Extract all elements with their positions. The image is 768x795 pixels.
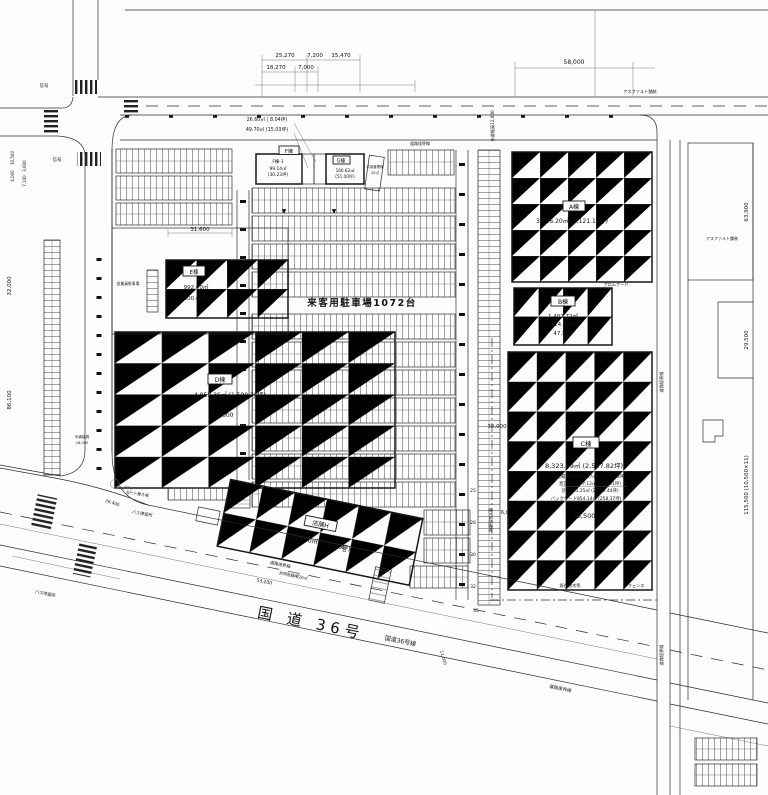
dim-label: 7,100 [22,175,27,187]
building-b: B棟 1,402.72㎡ (424.32坪) 47,550 [514,288,612,345]
building-f-label: F棟 [285,148,293,155]
crosswalk-east [124,99,138,114]
signal-label: 信号 [40,82,49,89]
promenade-label: プロムナード [603,282,628,288]
building-f1-area: 99.14㎡ [270,165,288,172]
building-d-dim: 57,600 [213,412,234,419]
dim-label: 53,200 [256,578,273,587]
building-b-area-tsubo: (424.32坪) [548,320,577,328]
dim-label: 32,000 [7,276,13,296]
building-a: A棟 3,706.20㎡ (1,121.12坪) プロムナード [512,152,652,288]
building-c-sub2: 直営売場477.12㎡ (192.91坪) [559,480,621,487]
dim-label: 30,000 [487,424,507,430]
stall-count: 25 [470,488,476,494]
building-c-label: C棟 [580,439,592,448]
building-c-sub1: (売場) 内6,995.17㎡ (2,116.93坪) [555,473,626,480]
bus-stop-label: バス停留所 [131,508,153,519]
building-e: E棟 992.00㎡ (300.08坪) 従業員駐車場 31,600 [112,227,288,334]
site-plan-svg: 信号 信号 道路境界線 歩道幅員12,000 25,270 7,200 15,4… [0,0,768,795]
site-plan-drawing: 信号 信号 道路境界線 歩道幅員12,000 25,270 7,200 15,4… [0,0,768,795]
dim-label: 10,500 [10,151,15,165]
dim-label: 18,270 [266,65,286,71]
building-e-area-tsubo: (300.08坪) [181,294,210,302]
building-f1-area-tsubo: (30.23坪) [268,171,289,178]
stall-count: 28 [470,520,476,526]
building-a-label: A棟 [569,203,579,211]
sidewalk-width-label: 歩道幅員12,000 [489,110,496,142]
building-d-label: D棟 [215,376,226,384]
building-f-note2: 49.70㎡ (15.03坪) [246,126,288,133]
building-f1-label: F棟-1 [272,158,284,165]
dim-label: 25,270 [275,53,295,59]
arrow-down-icon: ▼ [332,208,337,215]
building-f-note1: 26.60㎡ ( 8.04坪) [247,116,288,123]
bus-stop-label: バス停留所 [34,588,56,599]
building-c-area: 8,323.39㎡ (2,517.82坪) [545,461,623,470]
building-b-area: 1,402.72㎡ [548,312,578,320]
crosswalk-north [75,80,97,94]
building-b-label: B棟 [558,298,568,306]
dim-label: 11,000 [439,650,448,666]
building-g-label: G棟 [337,158,346,165]
dim-label: 86,100 [7,390,13,410]
dim-label: 4,000 [10,170,15,182]
stall-count: 35 [473,608,479,614]
building-e-area: 992.00㎡ [184,283,209,291]
building-a-area: 3,706.20㎡ (1,121.12坪) [536,217,608,225]
dim-label: 31,600 [190,227,210,233]
arrow-down-icon: ▼ [282,208,287,215]
bicycle-parking-label: 共同駐輪場20㎡ [279,569,309,581]
road-boundary-label: 道路境界線 [658,371,665,393]
building-d-area: 4,959.36㎡ (1,500.20坪) [194,391,266,399]
dim-label: 115,500 (10,500×11) [744,455,750,515]
stall-count: 32 [470,584,476,590]
crosswalk-route36 [73,542,97,577]
building-e-label: E棟 [190,268,199,276]
employee-parking-label: 従業員駐車場 [117,281,140,286]
signal-label: 信号 [53,156,62,163]
crosswalk-route36 [31,494,58,531]
dim-label: 29,500 [744,330,750,350]
crosswalk-south [77,152,101,166]
sidewalk-label: 歩道幅員 [75,434,90,439]
existing-trees-label: 既存樹木等 [560,582,581,589]
building-c: C棟 8,323.39㎡ (2,517.82坪) (売場) 内6,995.17㎡… [508,352,652,590]
service-route-label: 搬入車両動線 [488,508,494,532]
asphalt-label: アスファルト舗装 [706,235,738,241]
management-hut-label: 共用管理棟 [367,164,385,169]
east-side-area: アスファルト舗装 63,900 29,500 115,500 (10,500×1… [657,132,757,795]
dim-label: 3,600 [22,160,27,172]
building-c-sub3: 計7,465.25㎡ (2,256.44坪) [561,487,618,494]
dim-label: 58,000 [564,59,585,66]
route36-label: 国 道 36号 [256,603,366,642]
management-hut-area: 20㎡ [371,170,379,175]
dim-label: 18,000 [76,441,89,445]
road-boundary-label: 道路境界線 [549,683,573,694]
crosswalk-west [44,110,58,135]
building-b-dim: 47,550 [553,331,573,337]
dim-label: 7,200 [307,53,323,59]
building-d: D棟 4,959.36㎡ (1,500.20坪) 57,600 [115,332,395,508]
building-g-area-tsubo: (51.00坪) [335,173,355,180]
building-c-dim: 70,500 [573,512,596,520]
stall-count: 30 [470,552,476,558]
building-g-area: 166.62㎡ [336,167,356,173]
asphalt-label: アスファルト舗装 [623,88,657,95]
dim-label: 7,000 [298,65,314,71]
road-boundary-label: 道路境界線 [658,644,665,666]
road-boundary-label: 道路境界線 [410,140,430,146]
dim-label: 26,400 [105,498,121,507]
top-dimensions: 25,270 7,200 15,470 18,270 7,000 58,000 … [255,10,658,97]
dim-label: 63,900 [744,202,750,222]
parking-capacity-label: 来客用駐車場1072台 [306,297,416,309]
dim-label: 15,470 [331,53,351,59]
